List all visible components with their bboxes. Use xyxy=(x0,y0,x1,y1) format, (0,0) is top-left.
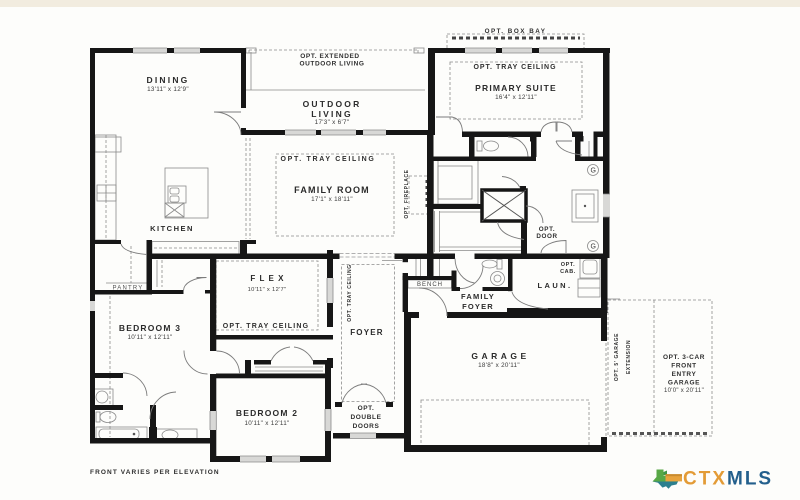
svg-text:G: G xyxy=(591,244,597,251)
svg-text:18'8" x 20'11": 18'8" x 20'11" xyxy=(478,362,520,369)
svg-text:OPT. 5' GARAGE: OPT. 5' GARAGE xyxy=(614,333,620,381)
svg-text:OPT. TRAY CEILING: OPT. TRAY CEILING xyxy=(473,64,556,71)
svg-text:CTX: CTX xyxy=(683,469,727,490)
svg-text:ENTRY: ENTRY xyxy=(672,371,697,378)
svg-text:BEDROOM 3: BEDROOM 3 xyxy=(119,323,181,333)
svg-text:OPT. FIREPLACE: OPT. FIREPLACE xyxy=(404,169,410,218)
svg-text:PRIMARY SUITE: PRIMARY SUITE xyxy=(475,83,557,93)
svg-text:FOYER: FOYER xyxy=(350,328,384,337)
svg-text:10'11" x 12'11": 10'11" x 12'11" xyxy=(127,334,172,341)
svg-text:FRONT: FRONT xyxy=(671,363,696,370)
svg-text:10'11" x 12'7": 10'11" x 12'7" xyxy=(248,287,287,293)
svg-text:DOUBLE: DOUBLE xyxy=(350,414,381,421)
svg-text:OPT. 3-CAR: OPT. 3-CAR xyxy=(663,354,705,361)
svg-text:DOORS: DOORS xyxy=(353,423,380,430)
svg-text:OPT. TRAY CEILING: OPT. TRAY CEILING xyxy=(347,264,353,321)
svg-text:CAB.: CAB. xyxy=(560,269,576,275)
svg-text:10'0" x 20'11": 10'0" x 20'11" xyxy=(664,388,704,394)
svg-text:PANTRY: PANTRY xyxy=(113,286,144,292)
svg-text:OPT.: OPT. xyxy=(358,405,375,412)
svg-text:OPT.: OPT. xyxy=(561,262,576,268)
svg-text:FOYER: FOYER xyxy=(462,302,494,311)
svg-text:BENCH: BENCH xyxy=(417,282,443,288)
svg-text:17'3" x 6'7": 17'3" x 6'7" xyxy=(315,119,350,126)
svg-text:FAMILY ROOM: FAMILY ROOM xyxy=(294,185,370,195)
svg-text:10'11" x 12'11": 10'11" x 12'11" xyxy=(244,420,289,427)
svg-text:OPT. EXTENDED: OPT. EXTENDED xyxy=(300,53,359,60)
svg-text:LAUN.: LAUN. xyxy=(538,281,573,290)
svg-text:OUTDOOR LIVING: OUTDOOR LIVING xyxy=(299,61,364,68)
svg-text:FLEX: FLEX xyxy=(250,274,287,283)
svg-text:GARAGE: GARAGE xyxy=(668,380,700,387)
svg-text:GARAGE: GARAGE xyxy=(471,351,529,361)
svg-text:OUTDOOR: OUTDOOR xyxy=(303,99,362,109)
svg-text:17'1" x 18'11": 17'1" x 18'11" xyxy=(311,196,353,203)
svg-text:G: G xyxy=(591,168,597,175)
svg-text:LIVING: LIVING xyxy=(311,109,353,119)
svg-text:EXTENSION: EXTENSION xyxy=(626,340,632,374)
svg-text:OPT.: OPT. xyxy=(539,226,555,233)
svg-text:OPT. BOX BAY: OPT. BOX BAY xyxy=(485,28,547,35)
svg-text:OPT. TRAY CEILING: OPT. TRAY CEILING xyxy=(223,323,310,330)
svg-text:BEDROOM 2: BEDROOM 2 xyxy=(236,408,298,418)
svg-text:OPT. TRAY CEILING: OPT. TRAY CEILING xyxy=(280,156,375,163)
svg-text:13'11" x 12'9": 13'11" x 12'9" xyxy=(147,86,189,93)
svg-text:KITCHEN: KITCHEN xyxy=(150,224,194,233)
svg-text:MLS: MLS xyxy=(727,469,773,490)
svg-text:FRONT VARIES PER ELEVATION: FRONT VARIES PER ELEVATION xyxy=(90,469,220,476)
svg-text:FAMILY: FAMILY xyxy=(461,292,495,301)
svg-text:DINING: DINING xyxy=(147,75,190,85)
svg-text:16'4" x 12'11": 16'4" x 12'11" xyxy=(495,94,537,101)
svg-text:DOOR: DOOR xyxy=(536,233,557,240)
